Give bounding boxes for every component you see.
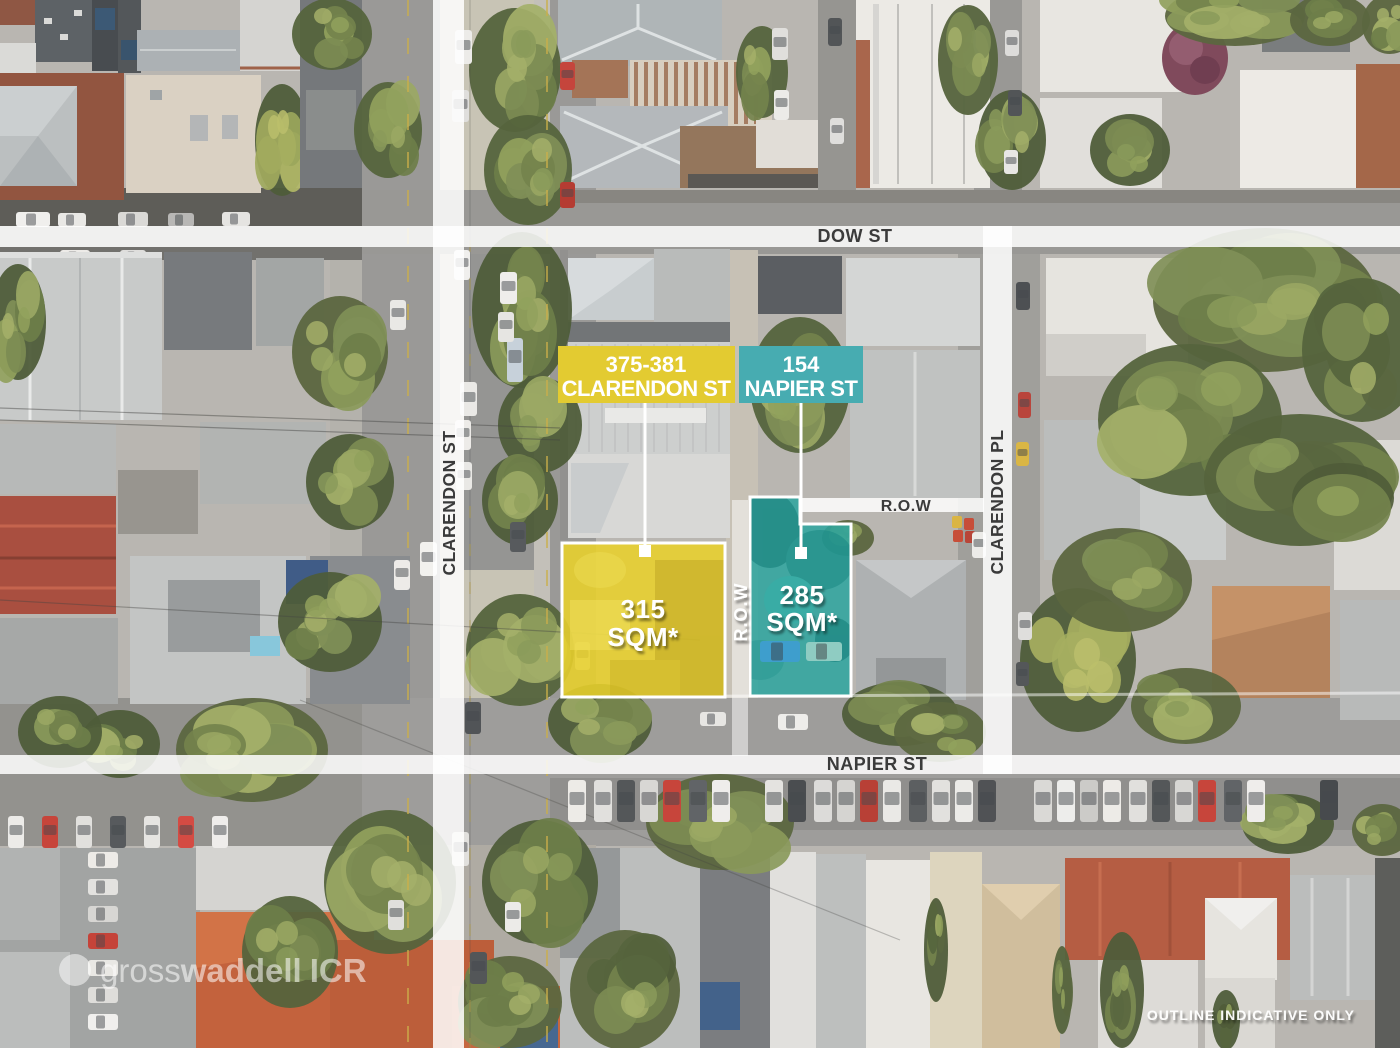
svg-text:CLARENDON PL: CLARENDON PL (987, 429, 1007, 574)
svg-text:R.O.W: R.O.W (731, 583, 751, 642)
svg-text:375-381: 375-381 (606, 352, 687, 377)
svg-text:CLARENDON ST: CLARENDON ST (562, 376, 732, 401)
svg-text:CLARENDON ST: CLARENDON ST (439, 430, 459, 575)
svg-text:154: 154 (783, 352, 820, 377)
svg-text:NAPIER ST: NAPIER ST (745, 376, 859, 401)
svg-text:OUTLINE INDICATIVE ONLY: OUTLINE INDICATIVE ONLY (1147, 1007, 1355, 1023)
svg-text:R.O.W: R.O.W (881, 498, 932, 515)
svg-text:SQM*: SQM* (766, 607, 838, 637)
svg-text:315: 315 (621, 594, 666, 624)
svg-text:SQM*: SQM* (607, 622, 679, 652)
svg-text:285: 285 (780, 580, 825, 610)
svg-text:DOW ST: DOW ST (818, 226, 893, 246)
svg-text:grosswaddellICR: grosswaddellICR (100, 952, 367, 989)
svg-text:NAPIER ST: NAPIER ST (827, 754, 928, 774)
